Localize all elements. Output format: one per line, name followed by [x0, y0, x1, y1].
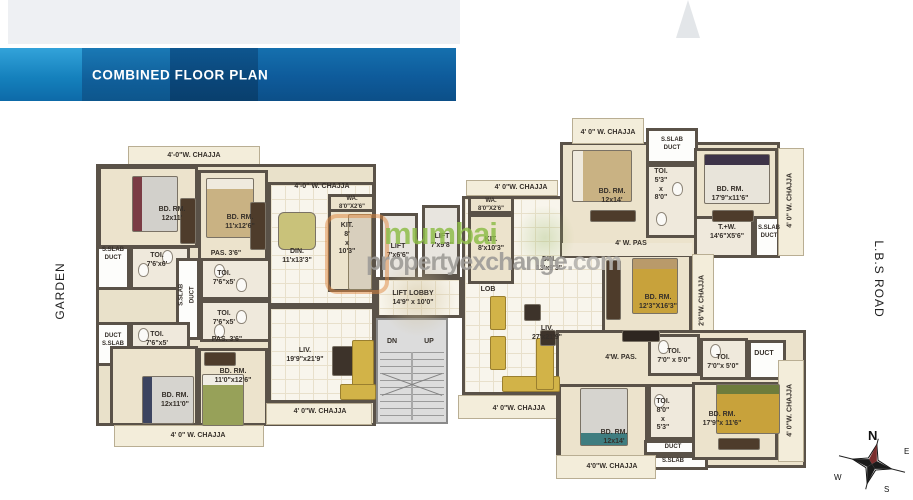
label-lobby: LOB [468, 286, 508, 295]
label-duct-vertical: DUCT [189, 275, 197, 315]
watermark-brand: mumbai [384, 216, 497, 252]
label-chajja: 4' 0"W. CHAJJA [469, 405, 569, 414]
label-duct-sslab: DUCT S.SLAB [94, 333, 132, 348]
title-banner: COMBINED FLOOR PLAN [0, 48, 456, 101]
compass-east: E [904, 447, 909, 456]
label-duct: DUCT [744, 350, 784, 359]
label-passage: PAS. 3'6" [196, 250, 256, 259]
wardrobe [204, 352, 236, 366]
label-stairs-up: UP [415, 338, 443, 347]
label-dining: DIN. 11'x13'3" [267, 248, 327, 266]
banner-segment-1 [0, 48, 82, 101]
label-toilet: TOI. 7'0" x 5'0" [649, 348, 699, 366]
label-toilet: TOI. 7'6"x5' [135, 331, 179, 349]
floor-plan-page: COMBINED FLOOR PLAN [0, 0, 913, 500]
label-chajja-vertical: 2'6"W. CHAJJA [699, 260, 708, 340]
label-toilet: TOI. 8'0" x 5'3" [643, 398, 683, 433]
label-passage: PAS. 3'6" [197, 336, 257, 345]
wardrobe [590, 210, 636, 222]
label-duct: DUCT [643, 444, 703, 452]
banner-segment-4 [258, 48, 456, 101]
label-toilet: TOI. 5'3" x 8'0" [641, 168, 681, 203]
label-washarea: WA. 8'0"X2'6" [332, 196, 372, 211]
label-toilet: TOI. 7'6"x5' [202, 310, 246, 328]
label-bedroom: BD. RM. 17'9"x11'6" [700, 186, 760, 204]
label-bedroom: BD. RM. 12'3"X16'3" [628, 294, 688, 312]
dresser [718, 438, 760, 450]
label-sslab-vertical: S.SLAB [178, 275, 186, 315]
label-sslab-duct: S.SLAB DUCT [742, 225, 796, 240]
lbs-road-label: L.B.S ROAD [872, 239, 886, 319]
label-living: LIV. 27'x21'9" [517, 325, 577, 343]
label-chajja: 4'-0"W. CHAJJA [144, 152, 244, 161]
coffee-table [524, 304, 541, 321]
label-chajja: 4' 0"W. CHAJJA [270, 408, 370, 417]
label-bedroom: BD. RM. 12x14' [582, 188, 642, 206]
sofa [490, 296, 506, 330]
label-toilet: TOI. 7'6"x5' [202, 270, 246, 288]
dining-table [278, 212, 316, 250]
label-chajja: 4'0"W. CHAJJA [562, 463, 662, 472]
label-sslab-duct: S.SLAB DUCT [94, 247, 132, 262]
label-chajja: 4' 0" W. CHAJJA [148, 432, 248, 441]
sofa [490, 336, 506, 370]
label-washarea: WA. 8'0"X2'6" [471, 198, 511, 213]
wardrobe [712, 210, 754, 222]
wc-fixture [656, 212, 667, 226]
compass-west: W [834, 473, 842, 482]
watermark-tld: .com [567, 248, 621, 276]
label-bedroom: BD. RM. 12x11' [142, 206, 202, 224]
label-lift-lobby: LIFT LOBBY 14'9" x 10'0" [373, 290, 453, 308]
compass-north: N [868, 428, 877, 443]
label-chajja: 4' 0"W. CHAJJA [471, 184, 571, 193]
label-bedroom: BD. RM. 12x14' [584, 429, 644, 447]
label-living: LIV. 19'9"x21'9" [275, 347, 335, 365]
bed [132, 176, 178, 232]
label-stairs-down: DN [378, 338, 406, 347]
label-bedroom: BD. RM. 11'0"x12'6" [203, 368, 263, 386]
label-bedroom: BD. RM. 17'9"x 11'6" [692, 411, 752, 429]
tower-watermark-icon [676, 0, 700, 38]
watermark-domain-text: propertyexchange [366, 248, 567, 276]
sofa [340, 384, 376, 400]
label-bedroom: BD. RM. 12x11'0" [145, 392, 205, 410]
label-chajja: 4'-0" W. CHAJJA [272, 183, 372, 192]
label-sslab-duct: S.SLAB DUCT [649, 137, 695, 152]
dresser [622, 330, 660, 342]
garden-label: GARDEN [53, 256, 67, 326]
header-gray-band [8, 0, 460, 44]
label-toilet: TOI. 7'0"x 5'0" [698, 354, 748, 372]
label-chajja-vertical: 4' 0"W. CHAJJA [787, 365, 796, 455]
label-passage: 4'W. PAS. [591, 354, 651, 363]
compass-south: S [884, 485, 889, 494]
watermark-domain: propertyexchange.com [366, 248, 621, 277]
label-bedroom: BD. RM. 11'x12'6" [210, 214, 270, 232]
label-chajja: 4' 0" W. CHAJJA [558, 129, 658, 138]
label-toilet: TOI. 7'6'x6' [135, 252, 179, 270]
compass-rose-icon: N E W S [832, 428, 912, 494]
stair-divider [411, 352, 413, 420]
page-title: COMBINED FLOOR PLAN [92, 67, 268, 82]
sofa [332, 346, 354, 376]
